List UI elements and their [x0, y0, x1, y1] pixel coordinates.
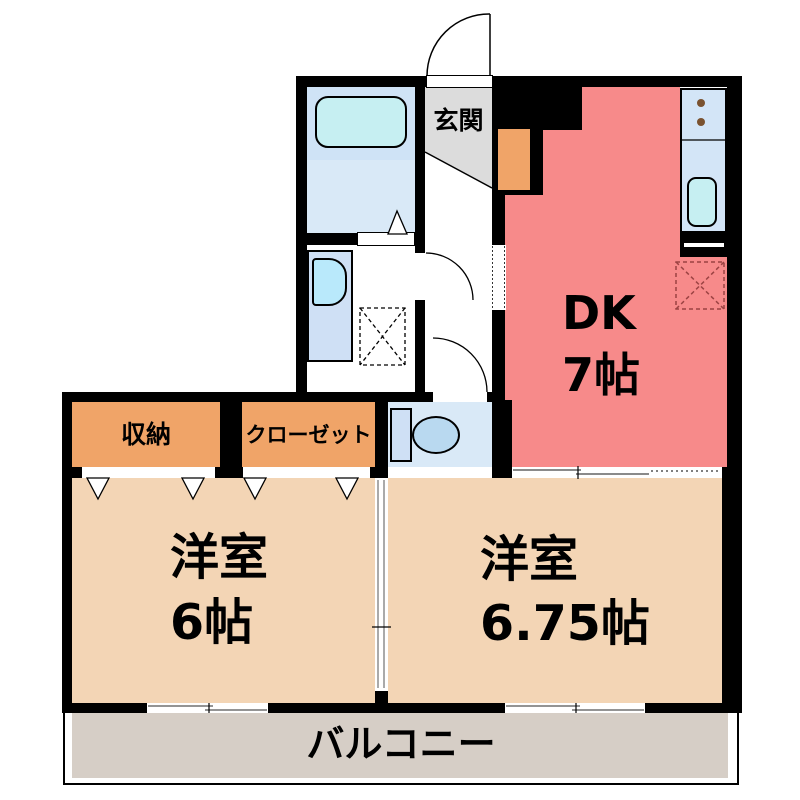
wall: [415, 87, 425, 253]
shoe-cabinet: [496, 127, 532, 192]
storage-folding-door-opening: [82, 467, 215, 478]
western-room-left-line2: 6帖: [170, 590, 268, 655]
closet-folding-door-opening: [243, 467, 370, 478]
wall: [62, 392, 72, 713]
dk-label-line2: 7帖: [562, 344, 640, 406]
washroom-door-arc: [426, 253, 473, 300]
floor-plan: 玄関 DK 7帖 収納 クローゼット 洋室 6帖 洋室 6.75帖 バルコニー: [0, 0, 800, 800]
wall: [415, 300, 425, 402]
bathtub-icon: [315, 96, 407, 148]
washbasin-sink-icon: [312, 258, 347, 306]
balcony-label: バルコニー: [63, 722, 739, 768]
western-room-left-line1: 洋室: [170, 525, 268, 590]
entrance-door-threshold: [426, 75, 493, 88]
toilet-tank: [390, 408, 412, 462]
bathroom-door-opening: [357, 232, 415, 246]
toilet-door-opening: [433, 392, 487, 402]
partition-bottom-stub: [375, 690, 388, 704]
western-room-left-label: 洋室 6帖: [170, 525, 268, 655]
dk-label: DK 7帖: [562, 282, 640, 406]
western-room-right-line2: 6.75帖: [480, 592, 650, 656]
window-left: [147, 703, 268, 713]
storage-label: 収納: [72, 420, 220, 450]
toilet-bowl-icon: [412, 416, 460, 454]
wall: [492, 76, 582, 130]
washroom-door-opening: [414, 253, 426, 300]
dk-room: [582, 87, 680, 132]
wall: [296, 233, 357, 245]
wall: [727, 76, 742, 478]
closet-label: クローゼット: [240, 423, 377, 448]
wall: [722, 467, 742, 713]
washing-machine-space-icon: [360, 308, 405, 365]
wall: [492, 400, 512, 478]
western-room-right-label: 洋室 6.75帖: [480, 528, 650, 656]
dk-room-sliding-partition: [512, 467, 722, 478]
window-right: [505, 703, 645, 713]
western-room-right-line1: 洋室: [480, 528, 650, 592]
dk-label-line1: DK: [562, 282, 640, 344]
room-partition-sliding-door: [375, 478, 388, 691]
dk-sliding-door: [491, 245, 506, 310]
wall: [492, 310, 505, 400]
genkan-floor: [425, 87, 492, 189]
wall: [220, 402, 242, 467]
genkan-label: 玄関: [425, 106, 492, 136]
wall: [492, 195, 505, 245]
entrance-door-arc: [427, 14, 490, 76]
counter-end-line: [684, 243, 724, 247]
toilet-door-arc: [433, 338, 487, 392]
kitchen-sink-icon: [687, 177, 717, 227]
